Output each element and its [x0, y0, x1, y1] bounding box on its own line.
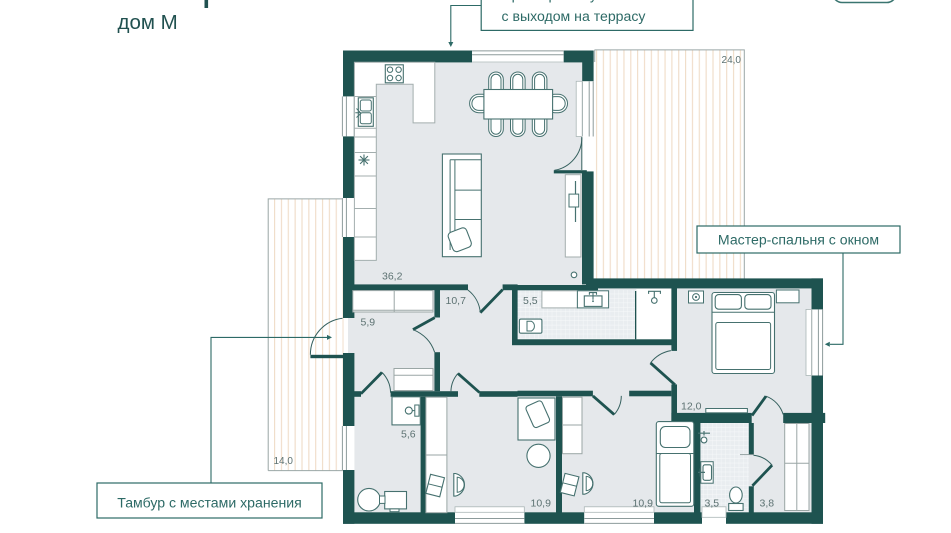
svg-text:14,0: 14,0: [274, 456, 294, 467]
svg-text:5,9: 5,9: [361, 317, 376, 329]
svg-text:5,5: 5,5: [523, 295, 538, 307]
svg-text:Просторная кухня-гостиная: Просторная кухня-гостиная: [502, 0, 682, 3]
svg-text:12,0: 12,0: [681, 401, 702, 413]
svg-text:с выходом на террасу: с выходом на террасу: [502, 8, 647, 24]
svg-text:10,7: 10,7: [446, 295, 467, 307]
svg-text:10,9: 10,9: [531, 498, 552, 510]
svg-text:36,2: 36,2: [382, 271, 403, 283]
svg-text:24,0: 24,0: [722, 55, 742, 66]
svg-text:10,9: 10,9: [633, 498, 654, 510]
svg-text:3,8: 3,8: [760, 498, 775, 510]
svg-text:дом М: дом М: [118, 11, 178, 34]
svg-text:3,5: 3,5: [705, 498, 720, 510]
svg-text:Мастер-спальня с окном: Мастер-спальня с окном: [718, 231, 879, 247]
svg-text:5,6: 5,6: [401, 429, 416, 441]
svg-text:Тамбур с местами хранения: Тамбур с местами хранения: [117, 494, 302, 510]
